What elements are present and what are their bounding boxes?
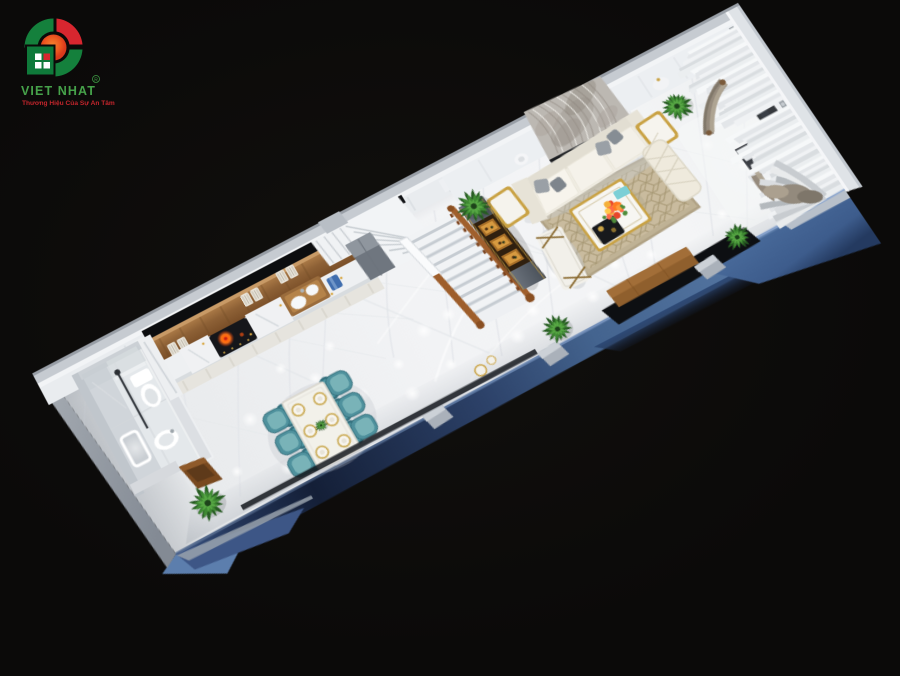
svg-text:R: R [94,78,98,84]
